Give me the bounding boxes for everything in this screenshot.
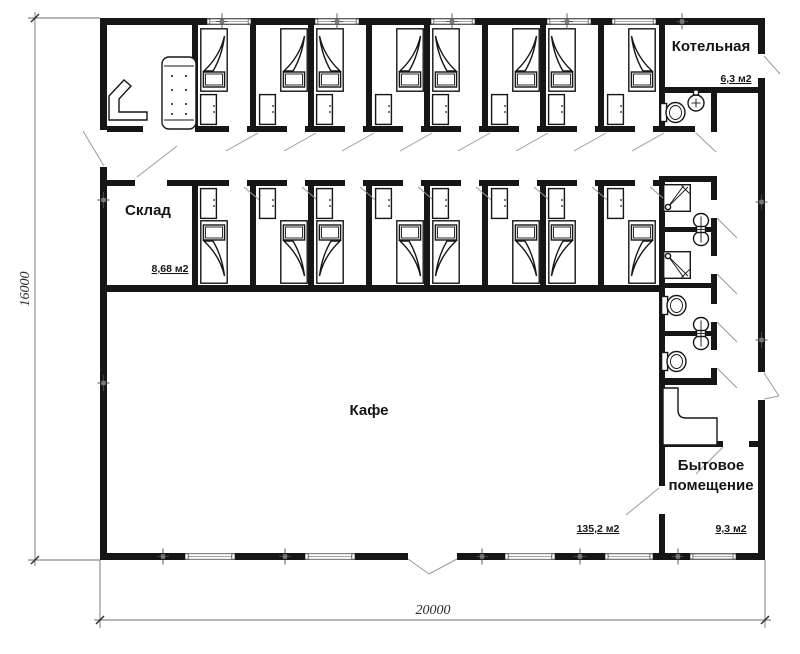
bed <box>281 29 307 91</box>
cabinet <box>201 95 217 125</box>
double-sink <box>693 318 709 350</box>
window <box>505 553 555 560</box>
window <box>605 553 653 560</box>
toilet <box>662 352 686 372</box>
dimension-width-label: 20000 <box>416 603 451 618</box>
bed <box>317 29 343 91</box>
room-area-cafe: 135,2 м2 <box>577 523 620 535</box>
room-label-storage: Склад <box>125 202 171 219</box>
cabinet <box>376 189 392 219</box>
reception-furniture <box>109 57 196 129</box>
double-sink <box>693 214 709 246</box>
bed <box>549 29 575 91</box>
cabinet <box>492 95 508 125</box>
room-label-utility-line1: Бытовое <box>678 457 744 474</box>
sanitary-fixtures <box>661 90 717 445</box>
room-label-utility-line2: помещение <box>668 477 753 494</box>
bed <box>397 29 423 91</box>
bed <box>281 221 307 283</box>
boiler-door-swing <box>764 56 780 74</box>
cabinet <box>376 95 392 125</box>
cabinet <box>608 95 624 125</box>
window <box>612 18 656 24</box>
main-door-swing <box>429 559 457 574</box>
cabinet <box>260 189 276 219</box>
bed <box>317 221 343 283</box>
toilet <box>661 103 685 123</box>
utility-door-opening <box>723 441 749 447</box>
wc-door-opening <box>695 126 711 132</box>
cabinet <box>317 95 333 125</box>
sofa <box>162 57 196 129</box>
bed <box>629 29 655 91</box>
bed <box>433 29 459 91</box>
cabinet <box>549 95 565 125</box>
room-label-boiler: Котельная <box>672 38 751 55</box>
window <box>207 18 251 24</box>
dimension-height-label: 16000 <box>18 272 33 307</box>
bed <box>513 221 539 283</box>
main-door-swing <box>408 559 429 574</box>
cabinet <box>317 189 333 219</box>
bedroom-cabinets <box>201 95 624 219</box>
shower-stall <box>664 252 691 279</box>
shower-stall <box>664 185 691 212</box>
bed <box>201 29 227 91</box>
room-area-boiler: 6,3 м2 <box>720 73 751 85</box>
storage-door-opening <box>135 180 167 186</box>
cabinet <box>433 95 449 125</box>
window <box>305 553 355 560</box>
bed <box>513 29 539 91</box>
bed <box>397 221 423 283</box>
cabinet <box>201 189 217 219</box>
cabinet <box>549 189 565 219</box>
cafe-utility-opening <box>659 486 665 514</box>
bed <box>201 221 227 283</box>
cabinet <box>260 95 276 125</box>
reception-desk <box>109 80 147 120</box>
dimension-bottom: 20000 <box>94 560 771 628</box>
bed <box>629 221 655 283</box>
window <box>185 553 235 560</box>
toilet <box>662 296 686 316</box>
bed <box>433 221 459 283</box>
window <box>690 553 736 559</box>
room-label-cafe: Кафе <box>350 402 389 419</box>
cabinet <box>492 189 508 219</box>
utility-counter <box>663 388 717 445</box>
floor-plan-drawing: 16000 20000 Котельная 6,3 м2 Склад 8,68 … <box>0 0 800 654</box>
room-area-utility: 9,3 м2 <box>715 523 746 535</box>
main-entrance-opening <box>408 553 457 560</box>
right-exterior-door-opening <box>758 372 765 400</box>
boiler-exterior-door-opening <box>758 54 765 78</box>
bed <box>549 221 575 283</box>
room-area-storage: 8,68 м2 <box>152 263 189 275</box>
cabinet <box>608 189 624 219</box>
floor-plan-page: 16000 20000 Котельная 6,3 м2 Склад 8,68 … <box>0 0 800 654</box>
cabinet <box>433 189 449 219</box>
dimension-left: 16000 <box>18 12 100 566</box>
round-sink <box>688 90 704 111</box>
